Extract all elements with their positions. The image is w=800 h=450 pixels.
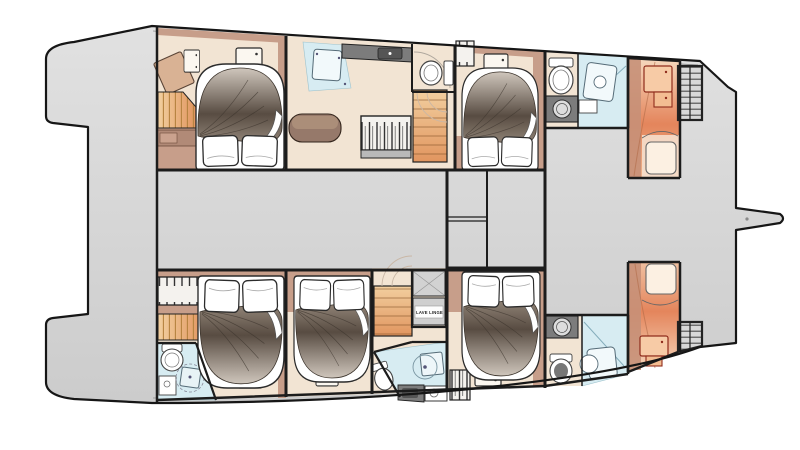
catamaran-floor-plan: LAVE LINGE [0, 0, 800, 450]
double-bed-aft-port [196, 64, 284, 170]
utility-column: LAVE LINGE [371, 256, 447, 402]
staircase-main-port [413, 90, 447, 162]
crew-cabin-port [628, 58, 680, 178]
washbasin-cabinet [546, 316, 578, 338]
washbasin-cabinet [546, 96, 578, 122]
washer-dryer-stack: LAVE LINGE [413, 271, 445, 325]
floor-plan-svg: LAVE LINGE [0, 0, 800, 450]
toilet [549, 58, 573, 94]
cabin-forward-port [455, 41, 545, 170]
laundry-label: LAVE LINGE [416, 310, 443, 315]
cabin-forward-starboard [447, 268, 545, 400]
double-bed-forward-port [462, 68, 538, 170]
washbasin [159, 376, 176, 395]
hanging-wardrobe [158, 277, 202, 305]
hanging-wardrobe [450, 370, 470, 400]
double-bed-aft-starboard [198, 276, 284, 388]
nightstand [184, 50, 200, 72]
cabin-mid-starboard [286, 270, 372, 397]
toilet [161, 344, 183, 371]
cabin-aft-starboard [157, 270, 286, 400]
bowsprit-fitting [745, 217, 748, 220]
hanging-wardrobe [361, 116, 411, 158]
double-bed-forward-starboard [462, 272, 540, 380]
owner-ensuite-dressing [286, 36, 455, 170]
cabin-aft-port [153, 28, 286, 170]
washbasin [579, 100, 597, 113]
sofa [289, 114, 341, 142]
companionway-steps-port [678, 66, 702, 120]
double-bed-mid-starboard [294, 276, 370, 382]
shower-tray [583, 62, 618, 102]
bathroom-forward-port [545, 52, 628, 128]
staircase-aft-starboard [158, 314, 204, 340]
